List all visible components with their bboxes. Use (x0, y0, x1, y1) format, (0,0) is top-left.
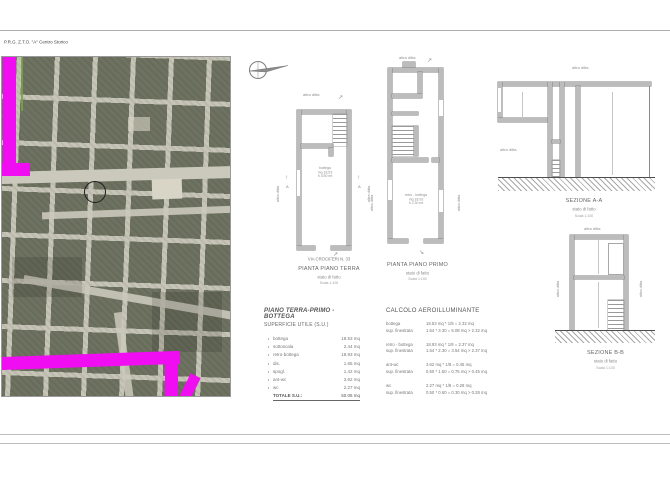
row-label: sup. finestrata (386, 390, 420, 396)
table-row: • wc 2.27 mq (264, 384, 360, 392)
bullet-icon: • (264, 351, 273, 358)
section-cut-arrow: ↑ (357, 175, 360, 181)
interior-wall (329, 148, 333, 156)
wall (331, 246, 351, 250)
wall (424, 239, 443, 243)
table-row: sup. finestrata 1.54 * 2.30 = 3.54 mq > … (386, 348, 528, 355)
ground-hatch (555, 330, 655, 343)
city-plan-map (2, 57, 230, 396)
drawing-title: SEZIONE B-B (553, 350, 658, 356)
drawing-state: stato di fatto (290, 275, 368, 280)
ground-hatch (498, 177, 655, 191)
row-value: 1.65 mq (326, 361, 360, 367)
bullet-icon: • (264, 343, 273, 350)
aero-group: retro - bottega 18.93 mq * 1/8 = 2.37 mq… (386, 342, 528, 356)
row-formula: 1.54 * 3.30 = 5.08 mq > 2.32 mq (426, 328, 513, 334)
room-label: retro - bottega mq 18.93 h 2.30 mt (399, 194, 433, 206)
zone-boundary-vertical (165, 354, 178, 396)
room-label: bottega mq 18.53 h 3.50 mt (307, 167, 343, 179)
wall (388, 68, 443, 72)
interior-wall (432, 158, 439, 162)
table-row: • retro-bottega 18.93 mq (264, 351, 360, 359)
row-label: sup. finestrata (386, 328, 420, 334)
zone-boundary-foot (2, 163, 30, 176)
table-row: bottega 18.53 mq * 1/8 = 2.32 mq (386, 321, 528, 328)
stair-landing (552, 140, 560, 143)
surface-table-title: PIANO TERRA-PRIMO - BOTTEGA (264, 308, 360, 320)
cut-letter: A (286, 185, 289, 190)
aero-table: CALCOLO AEROILLUMINANTE bottega 18.53 mq… (386, 308, 528, 396)
total-label: TOTALE S.U.: (273, 393, 317, 400)
window-opening (498, 88, 501, 112)
wall (388, 239, 408, 243)
wall (347, 110, 351, 250)
table-row: sup. finestrata 1.54 * 3.30 = 5.08 mq > … (386, 328, 528, 335)
table-row: • bottega 18.53 mq (264, 335, 360, 343)
cut-arrow-icon: ↗ (338, 95, 343, 101)
bullet-icon: • (264, 335, 273, 342)
bullet-icon: • (264, 368, 273, 375)
wall (576, 86, 580, 177)
table-row: • ant-wc 3.62 mq (264, 376, 360, 384)
drawing-state: stato di fatto (533, 207, 635, 212)
row-label: sup. finestrata (386, 349, 420, 355)
wall (297, 246, 315, 250)
dimension-line (598, 282, 599, 328)
table-row: ant-wc 3.62 mq * 1/8 = 0.45 mq (386, 362, 528, 369)
table-row: sup. finestrata 0.50 * 1.50 = 0.75 mq > … (386, 369, 528, 376)
light-building (128, 117, 150, 131)
neighbor-label: altra ditta (276, 186, 281, 202)
surface-list: • bottega 18.53 mq • sottoscala 2.44 mq … (264, 335, 360, 401)
bullet-icon: • (264, 376, 273, 383)
neighbor-label: altra ditta (399, 56, 415, 61)
sheet-border-top (0, 30, 670, 31)
plan-piano-primo: altra ditta ↗ retro - bottega mq 18.93 h… (375, 54, 460, 286)
section-cut-arrow: ↑ (285, 175, 288, 181)
row-label: ant-wc (273, 377, 317, 383)
sheet-border-bottom-inner (0, 443, 670, 444)
dark-block (12, 257, 82, 297)
stairs (333, 114, 347, 146)
aero-group: ant-wc 3.62 mq * 1/8 = 0.45 mq sup. fine… (386, 362, 528, 376)
row-formula: 0.50 * 1.50 = 0.75 mq > 0.45 mq (426, 369, 513, 375)
neighbor-label: altra ditta (370, 195, 375, 211)
drawing-state: stato di fatto (381, 271, 453, 276)
dimension-line (522, 92, 523, 118)
row-value: 18.93 mq (326, 353, 360, 359)
row-formula: 2.27 mq * 1/8 = 0.28 mq (426, 383, 513, 389)
window-opening (439, 100, 443, 116)
neighbor-label: altra ditta (639, 281, 644, 297)
interior-wall (418, 72, 422, 96)
dimension-line (612, 92, 613, 175)
sheet-border-bottom-outer (0, 434, 670, 435)
site-location-marker (84, 181, 106, 203)
wall (570, 235, 574, 330)
row-label: wc (386, 383, 420, 389)
bullet-icon: • (264, 384, 273, 391)
zone-boundary-strip-left (3, 57, 16, 167)
row-label: retro-bottega (273, 353, 317, 359)
neighbor-label: altra ditta (303, 93, 319, 98)
cut-arrow-icon: ↗ (427, 58, 432, 64)
neighbor-label: altra ditta (584, 227, 600, 232)
table-row: sup. finestrata 0.50 * 0.60 = 0.30 mq > … (386, 390, 528, 397)
floor-slab (498, 118, 548, 122)
section-bb: altra ditta altra ditta altra ditta SEZI… (553, 224, 658, 374)
table-row: retro - bottega 18.93 mq * 1/8 = 2.37 mq (386, 342, 528, 349)
row-formula: 1.54 * 2.30 = 3.54 mq > 2.37 mq (426, 349, 513, 355)
room-height: h 2.30 mt (399, 202, 433, 206)
row-formula: 0.50 * 0.60 = 0.30 mq > 0.28 mq (426, 390, 513, 396)
cut-arrow-icon: ↘ (419, 250, 424, 256)
row-formula: 18.93 mq * 1/8 = 2.37 mq (426, 342, 513, 348)
section-aa: altra ditta altra ditta SEZIONE A-A stat… (494, 62, 657, 220)
row-formula: 3.62 mq * 1/8 = 0.45 mq (426, 363, 513, 369)
drawing-title: SEZIONE A-A (524, 198, 644, 204)
stairs (392, 126, 414, 156)
green-boundary-line (21, 57, 23, 111)
north-arrow-icon (246, 58, 292, 87)
wall (439, 68, 443, 243)
row-label: bottega (386, 322, 420, 328)
dimension-line (598, 240, 599, 274)
floor-slab (574, 276, 624, 279)
row-label: ant-wc (386, 363, 420, 369)
drawing-scale: Scala 1:100 (542, 214, 626, 218)
row-label: spogl. (273, 369, 317, 375)
table-row: • spogl. 1.42 mq (264, 368, 360, 376)
drawing-title: PIANTA PIANO TERRA (283, 266, 375, 272)
drawing-scale: Scala 1:100 (297, 281, 361, 285)
aero-group: wc 2.27 mq * 1/8 = 0.28 mq sup. finestra… (386, 383, 528, 397)
stair-opening (608, 243, 624, 275)
interior-wall (392, 112, 418, 115)
neighbor-label: altra ditta (556, 281, 561, 297)
row-label: wc (273, 386, 317, 392)
window-opening (388, 180, 392, 200)
row-label: dis. (273, 361, 317, 367)
table-row: • dis. 1.65 mq (264, 360, 360, 368)
window-opening (439, 190, 443, 212)
stair-shaft-wall (560, 82, 564, 177)
surface-table-subtitle: SUPERFICIE UTILE (S.U.) (264, 322, 360, 328)
interior-wall (392, 158, 428, 162)
row-value: 18.53 mq (326, 336, 360, 342)
neighbor-label: altra ditta (500, 148, 516, 153)
row-value: 2.44 mq (326, 345, 360, 351)
stair-steps (608, 300, 624, 330)
row-value: 2.27 mq (326, 386, 360, 392)
drawing-scale: Scala 1:100 (388, 277, 448, 281)
row-label: bottega (273, 336, 317, 342)
row-label: sottoscala (273, 345, 317, 351)
aero-group: bottega 18.53 mq * 1/8 = 2.32 mq sup. fi… (386, 321, 528, 335)
drawing-state: stato di fatto (561, 359, 650, 364)
interior-wall (392, 94, 422, 98)
interior-wall (414, 126, 418, 156)
roof-slab (570, 235, 628, 239)
row-label: sup. finestrata (386, 369, 420, 375)
wall-edge (649, 86, 650, 177)
row-value: 3.62 mq (326, 377, 360, 383)
bullet-icon: • (264, 360, 273, 367)
roof-slab (498, 82, 651, 86)
row-label: retro - bottega (386, 342, 420, 348)
cut-letter: A (358, 185, 361, 190)
table-row: wc 2.27 mq * 1/8 = 0.28 mq (386, 383, 528, 390)
neighbor-label: altra ditta (457, 195, 462, 211)
plan-piano-terra: altra ditta ↗ bottega mq 18.53 h 3.50 mt… (283, 93, 375, 293)
table-total-row: TOTALE S.U.: 50.06 mq (273, 392, 360, 401)
drawing-sheet: P.R.G. Z.T.O. "A" Centro Storico altra d… (0, 0, 670, 477)
street-label: VIA CROCIFERI N. 33 (290, 257, 368, 262)
wall (624, 235, 628, 330)
drawing-scale: Scala 1:100 (569, 366, 643, 370)
aero-table-title: CALCOLO AEROILLUMINANTE (386, 308, 528, 314)
stair-steps (552, 160, 560, 177)
room-height: h 3.50 mt (307, 175, 343, 179)
drawing-title: PIANTA PIANO PRIMO (375, 262, 460, 268)
neighbor-label: altra ditta (572, 66, 588, 71)
surface-table: PIANO TERRA-PRIMO - BOTTEGA SUPERFICIE U… (264, 308, 360, 401)
row-value: 1.42 mq (326, 369, 360, 375)
total-value: 50.06 mq (326, 393, 360, 400)
row-formula: 18.53 mq * 1/8 = 2.32 mq (426, 322, 513, 328)
dark-block (152, 292, 222, 352)
light-building (152, 178, 183, 199)
wall-niche (297, 170, 300, 196)
zone-label: P.R.G. Z.T.O. "A" Centro Storico (4, 40, 68, 45)
table-row: • sottoscala 2.44 mq (264, 343, 360, 351)
